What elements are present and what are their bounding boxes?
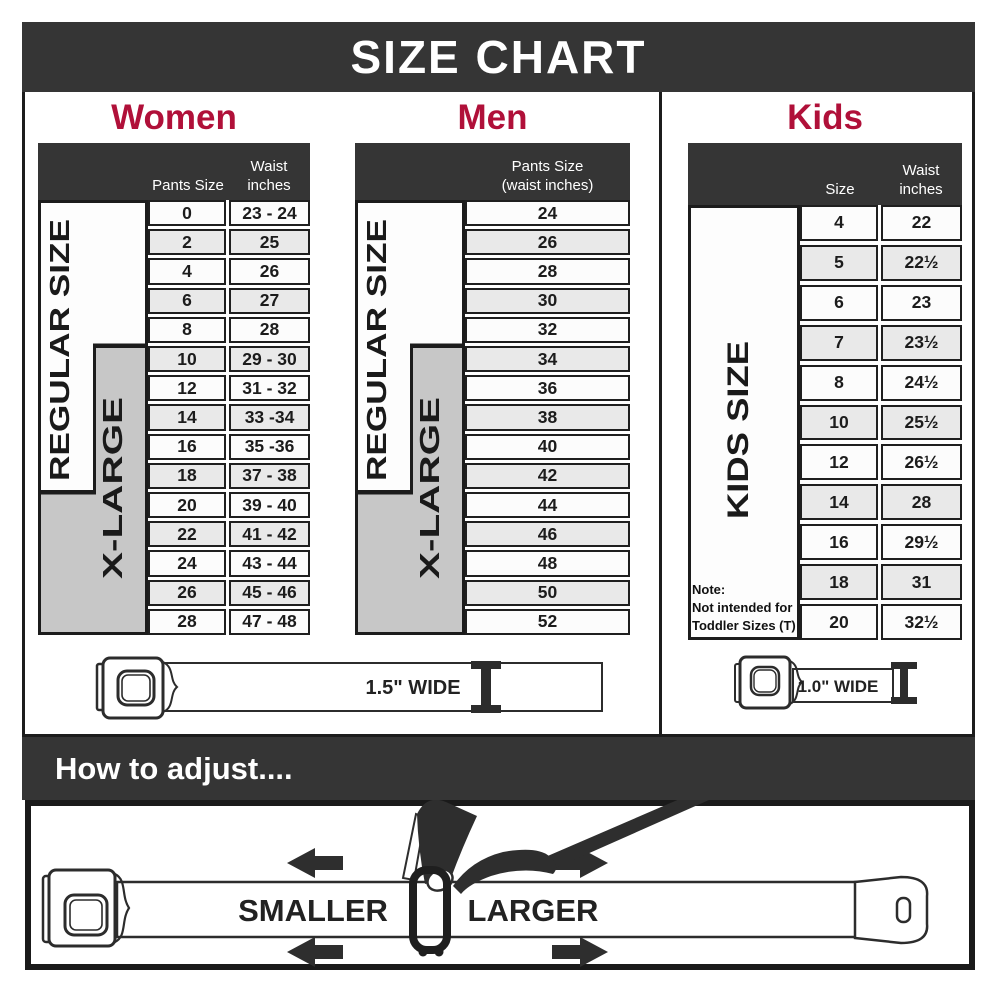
pants-size-cell: 28 [148, 609, 226, 635]
kids-col-size: Size [800, 180, 880, 199]
table-row: 422 [800, 205, 962, 241]
larger-label: LARGER [468, 893, 599, 928]
seatbelt-buckle-icon [43, 870, 129, 946]
table-row: 30 [465, 288, 630, 314]
waist-inches-cell: 41 - 42 [229, 521, 310, 547]
pants-size-cell: 48 [465, 550, 630, 576]
table-row: 1635 -36 [148, 434, 310, 460]
smaller-label: SMALLER [238, 893, 388, 928]
kids-size-cell: 10 [800, 405, 878, 441]
table-row: 1433 -34 [148, 404, 310, 430]
waist-inches-cell: 23½ [881, 325, 962, 361]
table-row: 34 [465, 346, 630, 372]
waist-inches-cell: 31 - 32 [229, 375, 310, 401]
women-xlarge-label: X-LARGE [97, 397, 128, 579]
women-regular-label: REGULAR SIZE [44, 219, 75, 481]
men-col-line2: (waist inches) [465, 176, 630, 195]
adjust-illustration: SMALLER LARGER [25, 800, 975, 970]
waist-inches-cell: 35 -36 [229, 434, 310, 460]
table-row: 023 - 24 [148, 200, 310, 226]
table-row: 36 [465, 375, 630, 401]
kids-table-body: 422522½623723½824½1025½1226½14281629½183… [800, 205, 962, 640]
table-row: 2645 - 46 [148, 580, 310, 606]
kids-size-cell: 14 [800, 484, 878, 520]
table-row: 623 [800, 285, 962, 321]
pants-size-cell: 24 [465, 200, 630, 226]
kids-heading: Kids [688, 96, 962, 140]
pants-size-cell: 32 [465, 317, 630, 343]
table-row: 723½ [800, 325, 962, 361]
table-row: 1029 - 30 [148, 346, 310, 372]
how-to-adjust-title: How to adjust.... [55, 751, 293, 787]
table-row: 426 [148, 258, 310, 284]
men-size-bands: REGULAR SIZE X-LARGE [355, 200, 465, 635]
pants-size-cell: 52 [465, 609, 630, 635]
kids-size-cell: 20 [800, 604, 878, 640]
waist-inches-cell: 22 [881, 205, 962, 241]
waist-inches-cell: 31 [881, 564, 962, 600]
women-col-waist-line1: Waist [228, 157, 310, 176]
table-row: 2039 - 40 [148, 492, 310, 518]
seatbelt-buckle-icon [735, 657, 802, 708]
women-table-body: 023 - 242254266278281029 - 301231 - 3214… [148, 200, 310, 635]
waist-inches-cell: 26½ [881, 444, 962, 480]
table-row: 2032½ [800, 604, 962, 640]
men-heading: Men [355, 96, 630, 140]
women-table-header: Pants Size Waist inches [38, 143, 310, 200]
table-row: 2847 - 48 [148, 609, 310, 635]
table-row: 38 [465, 404, 630, 430]
waist-inches-cell: 26 [229, 258, 310, 284]
women-heading: Women [38, 96, 310, 140]
table-row: 824½ [800, 365, 962, 401]
pants-size-cell: 4 [148, 258, 226, 284]
women-col-pants-size: Pants Size [148, 176, 228, 195]
table-row: 1226½ [800, 444, 962, 480]
pants-size-cell: 40 [465, 434, 630, 460]
pants-size-cell: 30 [465, 288, 630, 314]
pants-size-cell: 24 [148, 550, 226, 576]
adult-belt-width-label: 1.5" WIDE [365, 677, 460, 699]
table-row: 42 [465, 463, 630, 489]
pants-size-cell: 0 [148, 200, 226, 226]
pants-size-cell: 2 [148, 229, 226, 255]
pants-size-cell: 12 [148, 375, 226, 401]
table-row: 26 [465, 229, 630, 255]
table-row: 1831 [800, 564, 962, 600]
pants-size-cell: 14 [148, 404, 226, 430]
men-table-header: Pants Size (waist inches) [355, 143, 630, 200]
pants-size-cell: 26 [148, 580, 226, 606]
kids-note-line2: Not intended for [692, 599, 800, 617]
table-row: 24 [465, 200, 630, 226]
kids-size-cell: 5 [800, 245, 878, 281]
table-row: 1837 - 38 [148, 463, 310, 489]
kids-note-line1: Note: [692, 581, 800, 599]
pants-size-cell: 46 [465, 521, 630, 547]
kids-band-label: KIDS SIZE [722, 341, 755, 519]
kids-size-band: KIDS SIZE [688, 205, 800, 640]
men-table-body: 242628303234363840424446485052 [465, 200, 630, 635]
kids-col-waist-line1: Waist [880, 161, 962, 180]
table-row: 46 [465, 521, 630, 547]
waist-inches-cell: 39 - 40 [229, 492, 310, 518]
table-row: 48 [465, 550, 630, 576]
waist-inches-cell: 29½ [881, 524, 962, 560]
waist-inches-cell: 29 - 30 [229, 346, 310, 372]
pants-size-cell: 18 [148, 463, 226, 489]
waist-inches-cell: 43 - 44 [229, 550, 310, 576]
table-row: 52 [465, 609, 630, 635]
men-col-line1: Pants Size [465, 157, 630, 176]
pants-size-cell: 50 [465, 580, 630, 606]
pants-size-cell: 8 [148, 317, 226, 343]
pants-size-cell: 26 [465, 229, 630, 255]
kids-size-cell: 4 [800, 205, 878, 241]
kids-note: Note: Not intended for Toddler Sizes (T) [692, 581, 800, 635]
waist-inches-cell: 37 - 38 [229, 463, 310, 489]
men-regular-label: REGULAR SIZE [361, 219, 392, 481]
table-row: 1025½ [800, 405, 962, 441]
size-chart-banner: SIZE CHART [22, 22, 975, 92]
kids-section-divider [659, 92, 662, 737]
kids-size-cell: 18 [800, 564, 878, 600]
waist-inches-cell: 45 - 46 [229, 580, 310, 606]
waist-inches-cell: 27 [229, 288, 310, 314]
table-row: 1231 - 32 [148, 375, 310, 401]
pants-size-cell: 20 [148, 492, 226, 518]
waist-inches-cell: 28 [229, 317, 310, 343]
kids-size-cell: 8 [800, 365, 878, 401]
table-row: 44 [465, 492, 630, 518]
pants-size-cell: 6 [148, 288, 226, 314]
table-row: 32 [465, 317, 630, 343]
pants-size-cell: 38 [465, 404, 630, 430]
table-row: 627 [148, 288, 310, 314]
waist-inches-cell: 32½ [881, 604, 962, 640]
pants-size-cell: 42 [465, 463, 630, 489]
table-row: 28 [465, 258, 630, 284]
waist-inches-cell: 47 - 48 [229, 609, 310, 635]
table-row: 40 [465, 434, 630, 460]
kids-col-waist-line2: inches [880, 180, 962, 199]
kids-size-cell: 7 [800, 325, 878, 361]
belt-tip [855, 877, 927, 943]
table-row: 225 [148, 229, 310, 255]
pants-size-cell: 44 [465, 492, 630, 518]
pants-size-cell: 22 [148, 521, 226, 547]
waist-inches-cell: 33 -34 [229, 404, 310, 430]
waist-inches-cell: 23 [881, 285, 962, 321]
table-row: 50 [465, 580, 630, 606]
kids-size-cell: 16 [800, 524, 878, 560]
pants-size-cell: 34 [465, 346, 630, 372]
kids-size-cell: 6 [800, 285, 878, 321]
kids-size-cell: 12 [800, 444, 878, 480]
width-measure-icon [891, 662, 917, 704]
pants-size-cell: 28 [465, 258, 630, 284]
waist-inches-cell: 24½ [881, 365, 962, 401]
women-size-bands: REGULAR SIZE X-LARGE [38, 200, 148, 635]
page-title: SIZE CHART [351, 30, 647, 84]
pants-size-cell: 16 [148, 434, 226, 460]
table-row: 1629½ [800, 524, 962, 560]
table-row: 828 [148, 317, 310, 343]
men-xlarge-label: X-LARGE [414, 397, 445, 579]
table-row: 1428 [800, 484, 962, 520]
kids-table-header: Size Waist inches [688, 143, 962, 205]
table-row: 522½ [800, 245, 962, 281]
table-row: 2241 - 42 [148, 521, 310, 547]
waist-inches-cell: 25½ [881, 405, 962, 441]
pants-size-cell: 10 [148, 346, 226, 372]
women-col-waist-line2: inches [228, 176, 310, 195]
table-row: 2443 - 44 [148, 550, 310, 576]
kids-belt-width-label: 1.0" WIDE [798, 677, 879, 696]
how-to-adjust-banner: How to adjust.... [22, 737, 975, 800]
pants-size-cell: 36 [465, 375, 630, 401]
waist-inches-cell: 25 [229, 229, 310, 255]
kids-note-line3: Toddler Sizes (T) [692, 617, 800, 635]
waist-inches-cell: 28 [881, 484, 962, 520]
waist-inches-cell: 23 - 24 [229, 200, 310, 226]
adult-belt-illustration: 1.5" WIDE [95, 650, 605, 725]
waist-inches-cell: 22½ [881, 245, 962, 281]
kids-belt-illustration: 1.0" WIDE [733, 652, 933, 714]
